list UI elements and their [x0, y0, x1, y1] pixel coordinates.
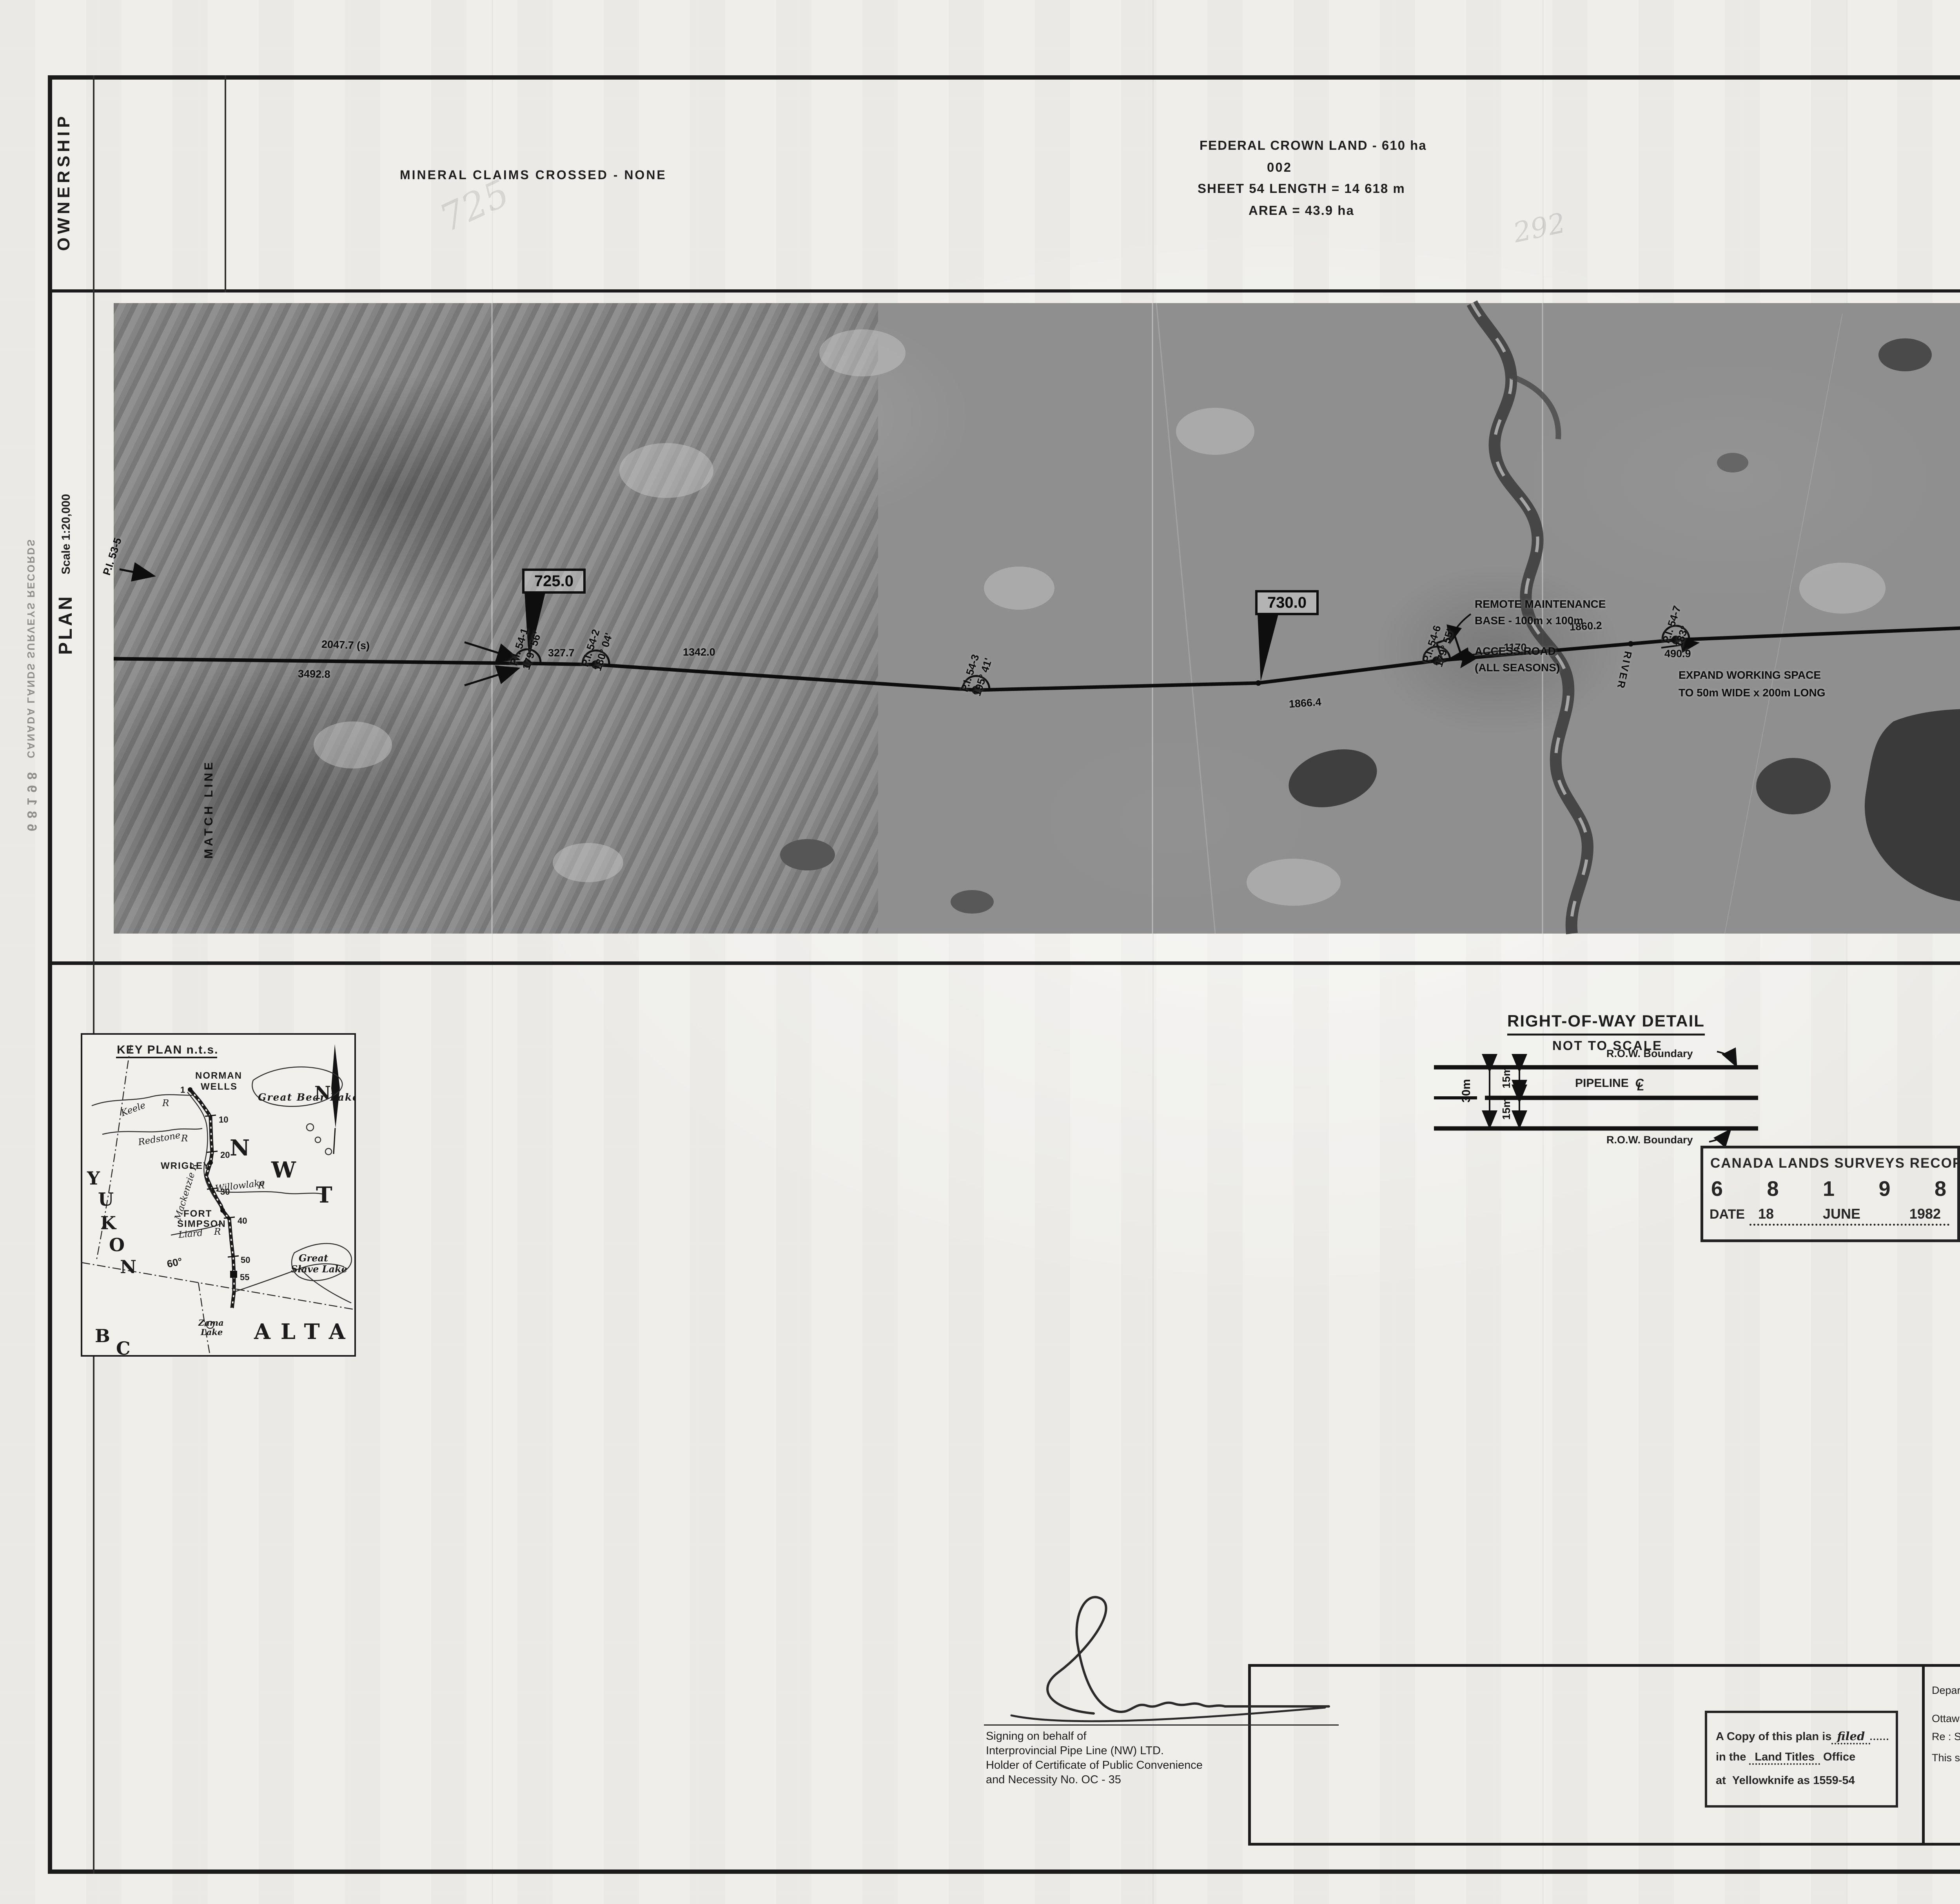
clsr-stamp-number: 68198: [1711, 1177, 1946, 1201]
key-plan-map: KEY PLAN n.t.s. N: [81, 1033, 356, 1357]
bottom-row-top-line: [1248, 1664, 1960, 1667]
photo-lakes: [780, 316, 1960, 914]
svg-text:50: 50: [241, 1255, 250, 1265]
clsr-records-stamp: CANADA LANDS SURVEYS RECORDS 68198 DATE …: [1700, 1146, 1960, 1242]
svg-text:U: U: [98, 1189, 114, 1210]
svg-text:Zama: Zama: [198, 1318, 224, 1328]
svg-text:O: O: [109, 1234, 125, 1255]
ipl-line-3: Holder of Certificate of Public Convenie…: [986, 1759, 1203, 1772]
distance-label: 3492.8: [298, 668, 330, 680]
ipl-line-4: and Necessity No. OC - 35: [986, 1773, 1121, 1786]
ipl-line-2: Interprovincial Pipe Line (NW) LTD.: [986, 1744, 1164, 1757]
ipl-signature-line: [984, 1724, 1339, 1726]
distance-label: 1342.0: [683, 646, 715, 658]
svg-text:C: C: [116, 1338, 131, 1357]
photo-light-patches: [314, 329, 1960, 906]
dia-heading: Department of Indian Affairs and Norther…: [1932, 1684, 1960, 1697]
svg-text:Great: Great: [299, 1252, 328, 1264]
edge-stamp-left: 68198 CANADA LANDS SURVEYS RECORDS: [24, 538, 39, 831]
svg-text:Liard: Liard: [178, 1228, 203, 1240]
clsr-date-label: DATE: [1710, 1207, 1745, 1222]
dim-15m-bottom: 15m: [1500, 1098, 1512, 1120]
svg-text:T: T: [316, 1182, 332, 1208]
flag-pennant-730: [1258, 613, 1279, 681]
svg-text:Y: Y: [87, 1168, 100, 1189]
photo-cutline: [1156, 303, 1215, 934]
svg-text:NORMAN: NORMAN: [195, 1070, 242, 1081]
ipl-line-1: Signing on behalf of: [986, 1730, 1086, 1743]
svg-text:Lake: Lake: [200, 1327, 223, 1337]
dia-ottawa-row: Ottawa September 9 , 1982: [1932, 1706, 1960, 1726]
dim-15m-top: 15m: [1500, 1066, 1512, 1088]
svg-text:R: R: [214, 1227, 221, 1237]
distance-label: 327.7: [548, 647, 575, 659]
remote-base-note: REMOTE MAINTENANCEBASE - 100m x 100m: [1475, 596, 1606, 629]
key-plan-title: KEY PLAN n.t.s.: [117, 1043, 218, 1056]
photo-features-svg: [0, 0, 1960, 1904]
svg-text:N: N: [120, 1256, 136, 1277]
svg-text:N: N: [230, 1135, 250, 1161]
svg-text:ALTA: ALTA: [254, 1319, 356, 1344]
svg-text:WRIGLEY: WRIGLEY: [161, 1161, 210, 1171]
km-flag-730: 730.0: [1255, 590, 1319, 615]
distance-label: 490.9: [1664, 648, 1691, 660]
signature-ipl: [988, 1592, 1348, 1723]
dia-re-line: Re : Section 43 Canada Lands Surveys Act: [1932, 1731, 1960, 1743]
bottom-row-bottom-line: [1248, 1843, 1960, 1846]
working-space-note: EXPAND WORKING SPACETO 50m WIDE x 200m L…: [1679, 667, 1826, 702]
km-flag-725: 725.0: [522, 569, 586, 594]
match-line-left: MATCH LINE: [202, 733, 216, 859]
svg-text:B: B: [95, 1325, 110, 1346]
svg-text:R: R: [258, 1181, 265, 1191]
svg-text:R: R: [162, 1098, 169, 1108]
svg-text:FORT: FORT: [183, 1208, 212, 1219]
row-detail-title: RIGHT-OF-WAY DETAIL: [1507, 1012, 1705, 1036]
land-titles-filing-stamp: A Copy of this plan isfiled in the Land …: [1705, 1711, 1898, 1808]
distance-label: 2047.7 (s): [321, 638, 370, 652]
dim-30m: 30m: [1460, 1079, 1473, 1103]
access-road-note: ACCESS ROAD(ALL SEASONS): [1475, 643, 1560, 676]
svg-text:55: 55: [240, 1272, 249, 1282]
svg-text:R: R: [181, 1134, 188, 1144]
svg-text:K: K: [100, 1212, 117, 1234]
svg-text:Slave Lake: Slave Lake: [291, 1263, 347, 1275]
clsr-stamp-title: CANADA LANDS SURVEYS RECORDS: [1710, 1155, 1960, 1171]
photo-cutline: [1725, 314, 1842, 933]
svg-text:WELLS: WELLS: [201, 1081, 238, 1092]
svg-text:1: 1: [180, 1085, 185, 1095]
survey-plan-sheet: OWNERSHIP MINERAL CLAIMS CROSSED - NONE …: [0, 0, 1960, 1904]
svg-text:W: W: [271, 1157, 296, 1183]
svg-text:40: 40: [238, 1216, 247, 1226]
photo-mosaic-seams: [492, 303, 1543, 934]
svg-text:20: 20: [220, 1150, 230, 1160]
svg-text:Great Bear Lake: Great Bear Lake: [258, 1092, 356, 1103]
row-detail-diagram: 30m 15m 15m: [1419, 1043, 1772, 1161]
distance-label: 1866.4: [1289, 696, 1322, 710]
dia-satisfactory-line: This survey and plan are satisfactory: [1932, 1752, 1960, 1764]
bottom-row-mid-line: [1922, 1664, 1925, 1844]
clsr-stamp-date-row: DATE 18JUNE1982: [1710, 1206, 1949, 1226]
svg-text:10: 10: [219, 1115, 228, 1125]
